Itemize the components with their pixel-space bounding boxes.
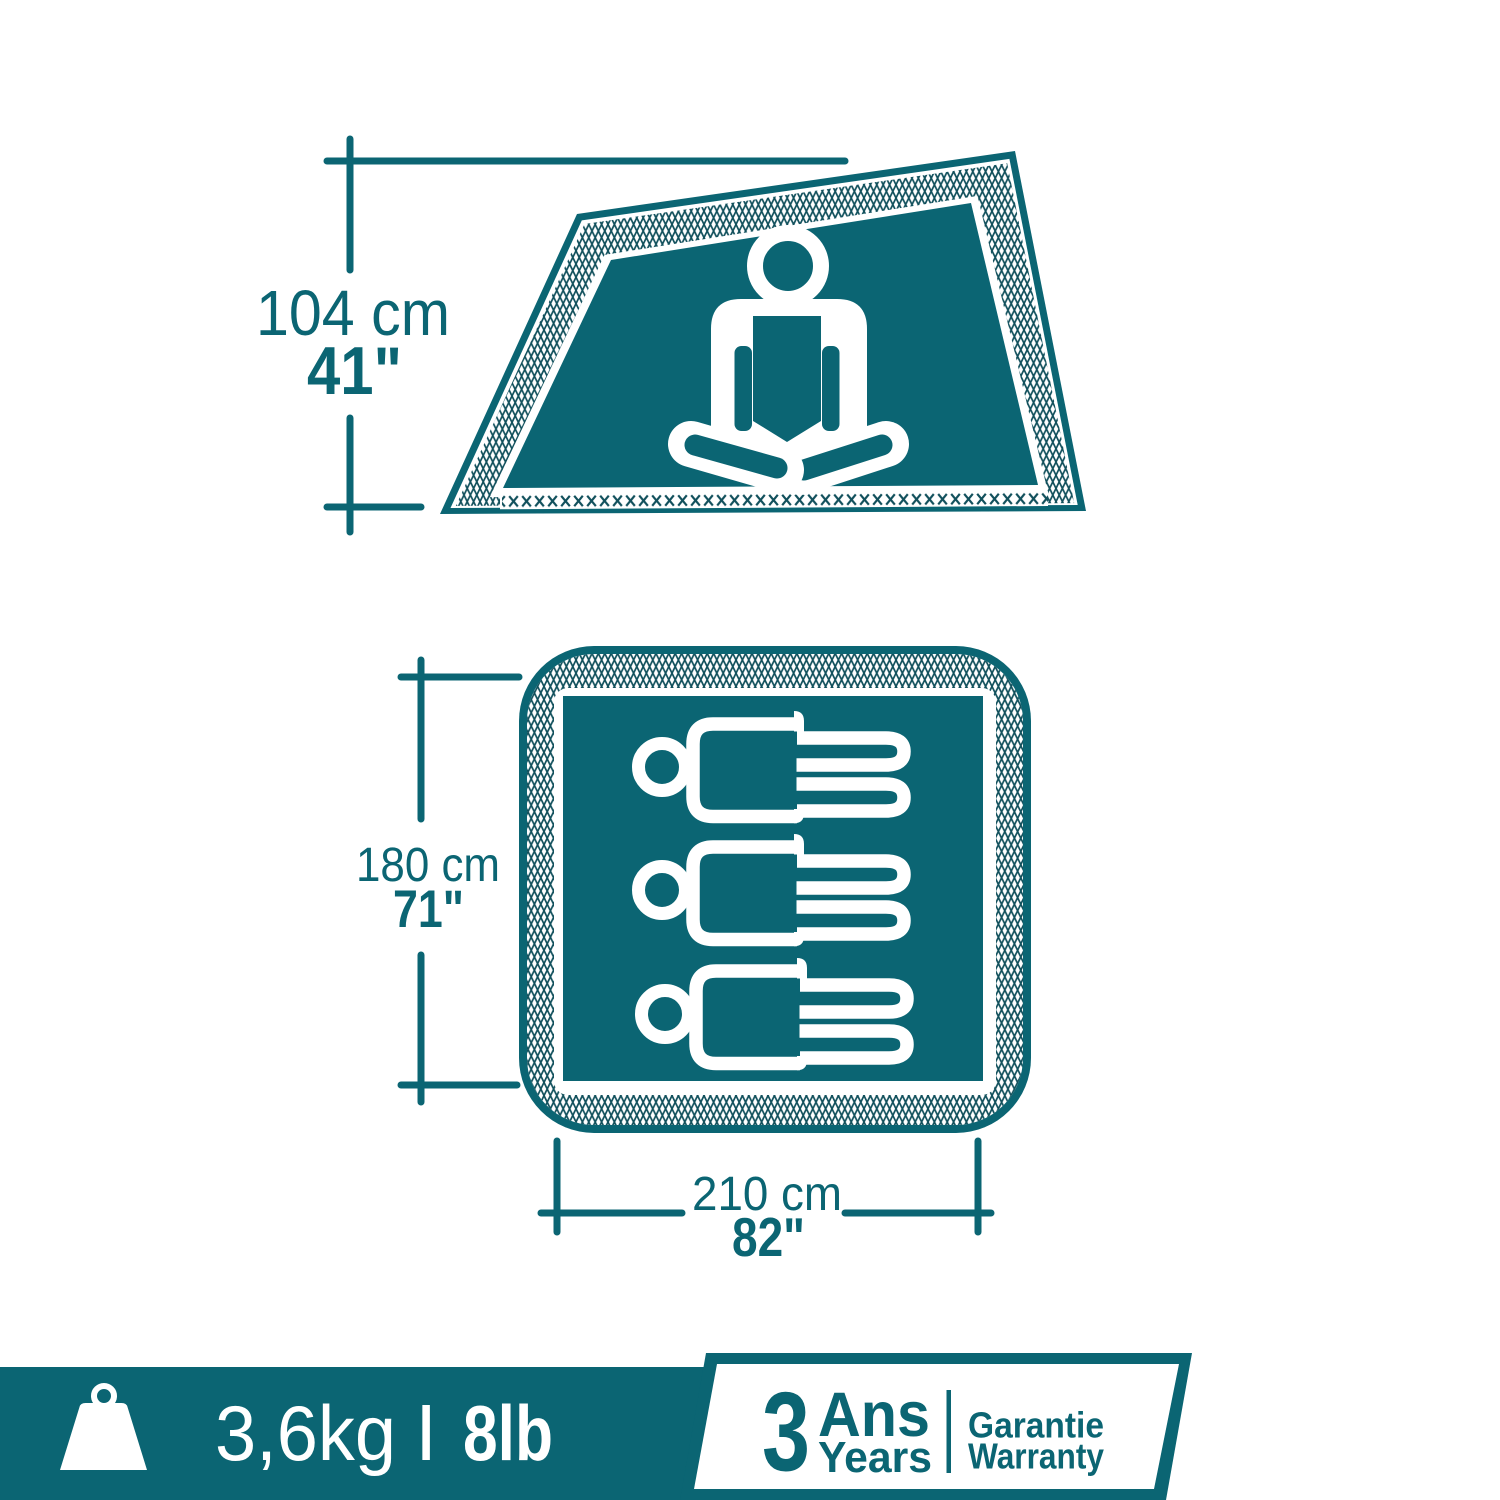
svg-text:82": 82" [732, 1206, 805, 1268]
svg-text:3: 3 [762, 1369, 810, 1494]
svg-text:71": 71" [393, 880, 464, 939]
svg-text:Warranty: Warranty [968, 1436, 1104, 1477]
svg-text:8lb: 8lb [463, 1389, 553, 1477]
svg-text:I: I [415, 1388, 437, 1477]
svg-text:3,6kg: 3,6kg [215, 1389, 396, 1477]
svg-text:Years: Years [818, 1433, 932, 1482]
svg-text:41": 41" [307, 333, 402, 409]
